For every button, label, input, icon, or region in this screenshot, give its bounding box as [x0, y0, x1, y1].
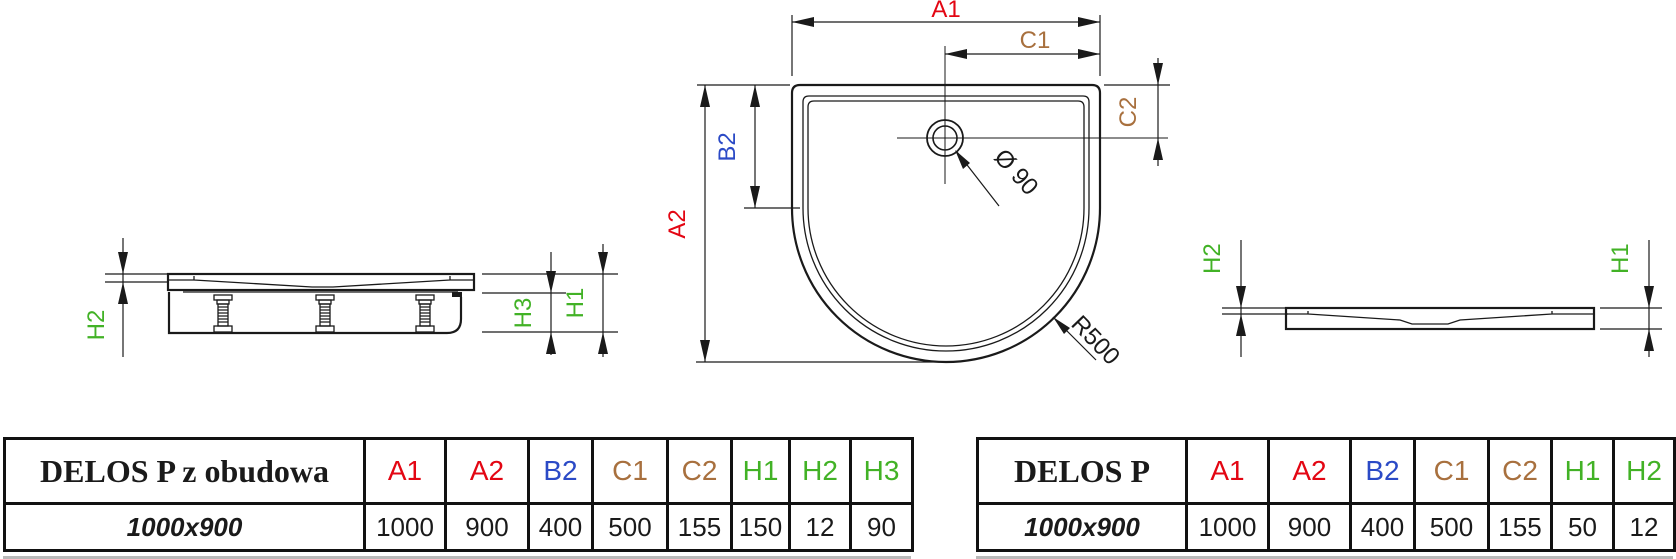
col-header-a2: A2: [446, 439, 529, 504]
col-header-c2: C2: [1489, 439, 1552, 504]
arrowhead: [1644, 329, 1654, 351]
value-h1: 150: [732, 504, 790, 551]
size-cell: 1000x900: [5, 504, 365, 551]
size-cell: 1000x900: [978, 504, 1187, 551]
tray-profile-outline: [1286, 308, 1594, 329]
adjustable-feet: [214, 295, 434, 332]
col-header-a1: A1: [365, 439, 446, 504]
tray-inner-profile: [168, 276, 474, 287]
dim-label-h2-panel-view: H2: [83, 310, 110, 341]
arrowhead: [1236, 286, 1246, 308]
dim-label-h1-panel-view: H1: [562, 288, 589, 319]
arrowhead: [1644, 286, 1654, 308]
arrowhead: [1153, 63, 1163, 85]
col-header-h1: H1: [732, 439, 790, 504]
drawings-svg: H2 H3 H1: [0, 0, 1676, 410]
col-header-h3: H3: [851, 439, 913, 504]
dim-label-c1: C1: [1020, 27, 1051, 54]
arrowhead: [1236, 314, 1246, 336]
tray-inner-profile: [1286, 311, 1594, 324]
arrowhead: [792, 17, 814, 27]
dim-label-a1: A1: [931, 0, 960, 23]
dim-label-h3-panel-view: H3: [510, 298, 537, 329]
arrowhead: [945, 49, 967, 59]
value-b2: 400: [529, 504, 593, 551]
dim-label-h2-tray-view: H2: [1199, 243, 1226, 274]
arrowhead: [598, 252, 608, 274]
tray-rim-line: [803, 96, 1089, 351]
table-title: DELOS P z obudowa: [5, 439, 365, 504]
value-c2: 155: [1489, 504, 1552, 551]
col-header-c2: C2: [668, 439, 732, 504]
col-header-b2: B2: [529, 439, 593, 504]
value-a1: 1000: [365, 504, 446, 551]
value-a1: 1000: [1187, 504, 1269, 551]
table-delos-p: DELOS P A1 A2 B2 C1 C2 H1 H2 1000x900 10…: [976, 437, 1676, 552]
dim-label-b2: B2: [714, 132, 741, 161]
arrowhead: [750, 186, 760, 208]
table-data-row: 1000x900 1000 900 400 500 155 150 12 90: [5, 504, 913, 551]
arrowhead: [1078, 49, 1100, 59]
col-header-c1: C1: [1415, 439, 1489, 504]
col-header-b2: B2: [1351, 439, 1415, 504]
value-h2: 12: [1614, 504, 1675, 551]
panel-outline: [169, 292, 461, 333]
value-h2: 12: [790, 504, 851, 551]
arrowhead: [1153, 138, 1163, 160]
value-b2: 400: [1351, 504, 1415, 551]
arrowhead: [118, 282, 128, 304]
col-header-c1: C1: [593, 439, 668, 504]
table-data-row: 1000x900 1000 900 400 500 155 50 12: [978, 504, 1675, 551]
table-delos-p-z-obudowa: DELOS P z obudowa A1 A2 B2 C1 C2 H1 H2 H…: [3, 437, 914, 552]
value-a2: 900: [446, 504, 529, 551]
value-c1: 500: [1415, 504, 1489, 551]
table-header-row: DELOS P A1 A2 B2 C1 C2 H1 H2: [978, 439, 1675, 504]
arrowhead: [1078, 17, 1100, 27]
table-title: DELOS P: [978, 439, 1187, 504]
col-header-h2: H2: [790, 439, 851, 504]
value-c1: 500: [593, 504, 668, 551]
side-view-tray: H2 H1: [1199, 240, 1662, 357]
dim-label-c2: C2: [1115, 97, 1142, 128]
arrowhead: [118, 252, 128, 274]
arrowhead: [750, 85, 760, 107]
col-header-a2: A2: [1269, 439, 1351, 504]
top-view: A1 C1 C2 B2 A2: [664, 0, 1170, 370]
value-a2: 900: [1269, 504, 1351, 551]
dim-label-a2: A2: [664, 209, 691, 238]
dim-label-radius: R500: [1066, 310, 1125, 370]
col-header-a1: A1: [1187, 439, 1269, 504]
dim-label-drain-diameter: Ø 90: [989, 144, 1044, 201]
panel-corner-block: [452, 292, 462, 297]
col-header-h1: H1: [1552, 439, 1614, 504]
dim-label-h1-tray-view: H1: [1607, 243, 1634, 274]
col-header-h2: H2: [1614, 439, 1675, 504]
table-header-row: DELOS P z obudowa A1 A2 B2 C1 C2 H1 H2 H…: [5, 439, 913, 504]
value-c2: 155: [668, 504, 732, 551]
arrowhead: [700, 340, 710, 362]
arrowhead: [598, 332, 608, 354]
arrowhead: [700, 85, 710, 107]
value-h1: 50: [1552, 504, 1614, 551]
side-view-with-panel: H2 H3 H1: [83, 238, 618, 357]
technical-drawing-sheet: H2 H3 H1: [0, 0, 1676, 559]
value-h3: 90: [851, 504, 913, 551]
arrowhead: [546, 332, 556, 354]
